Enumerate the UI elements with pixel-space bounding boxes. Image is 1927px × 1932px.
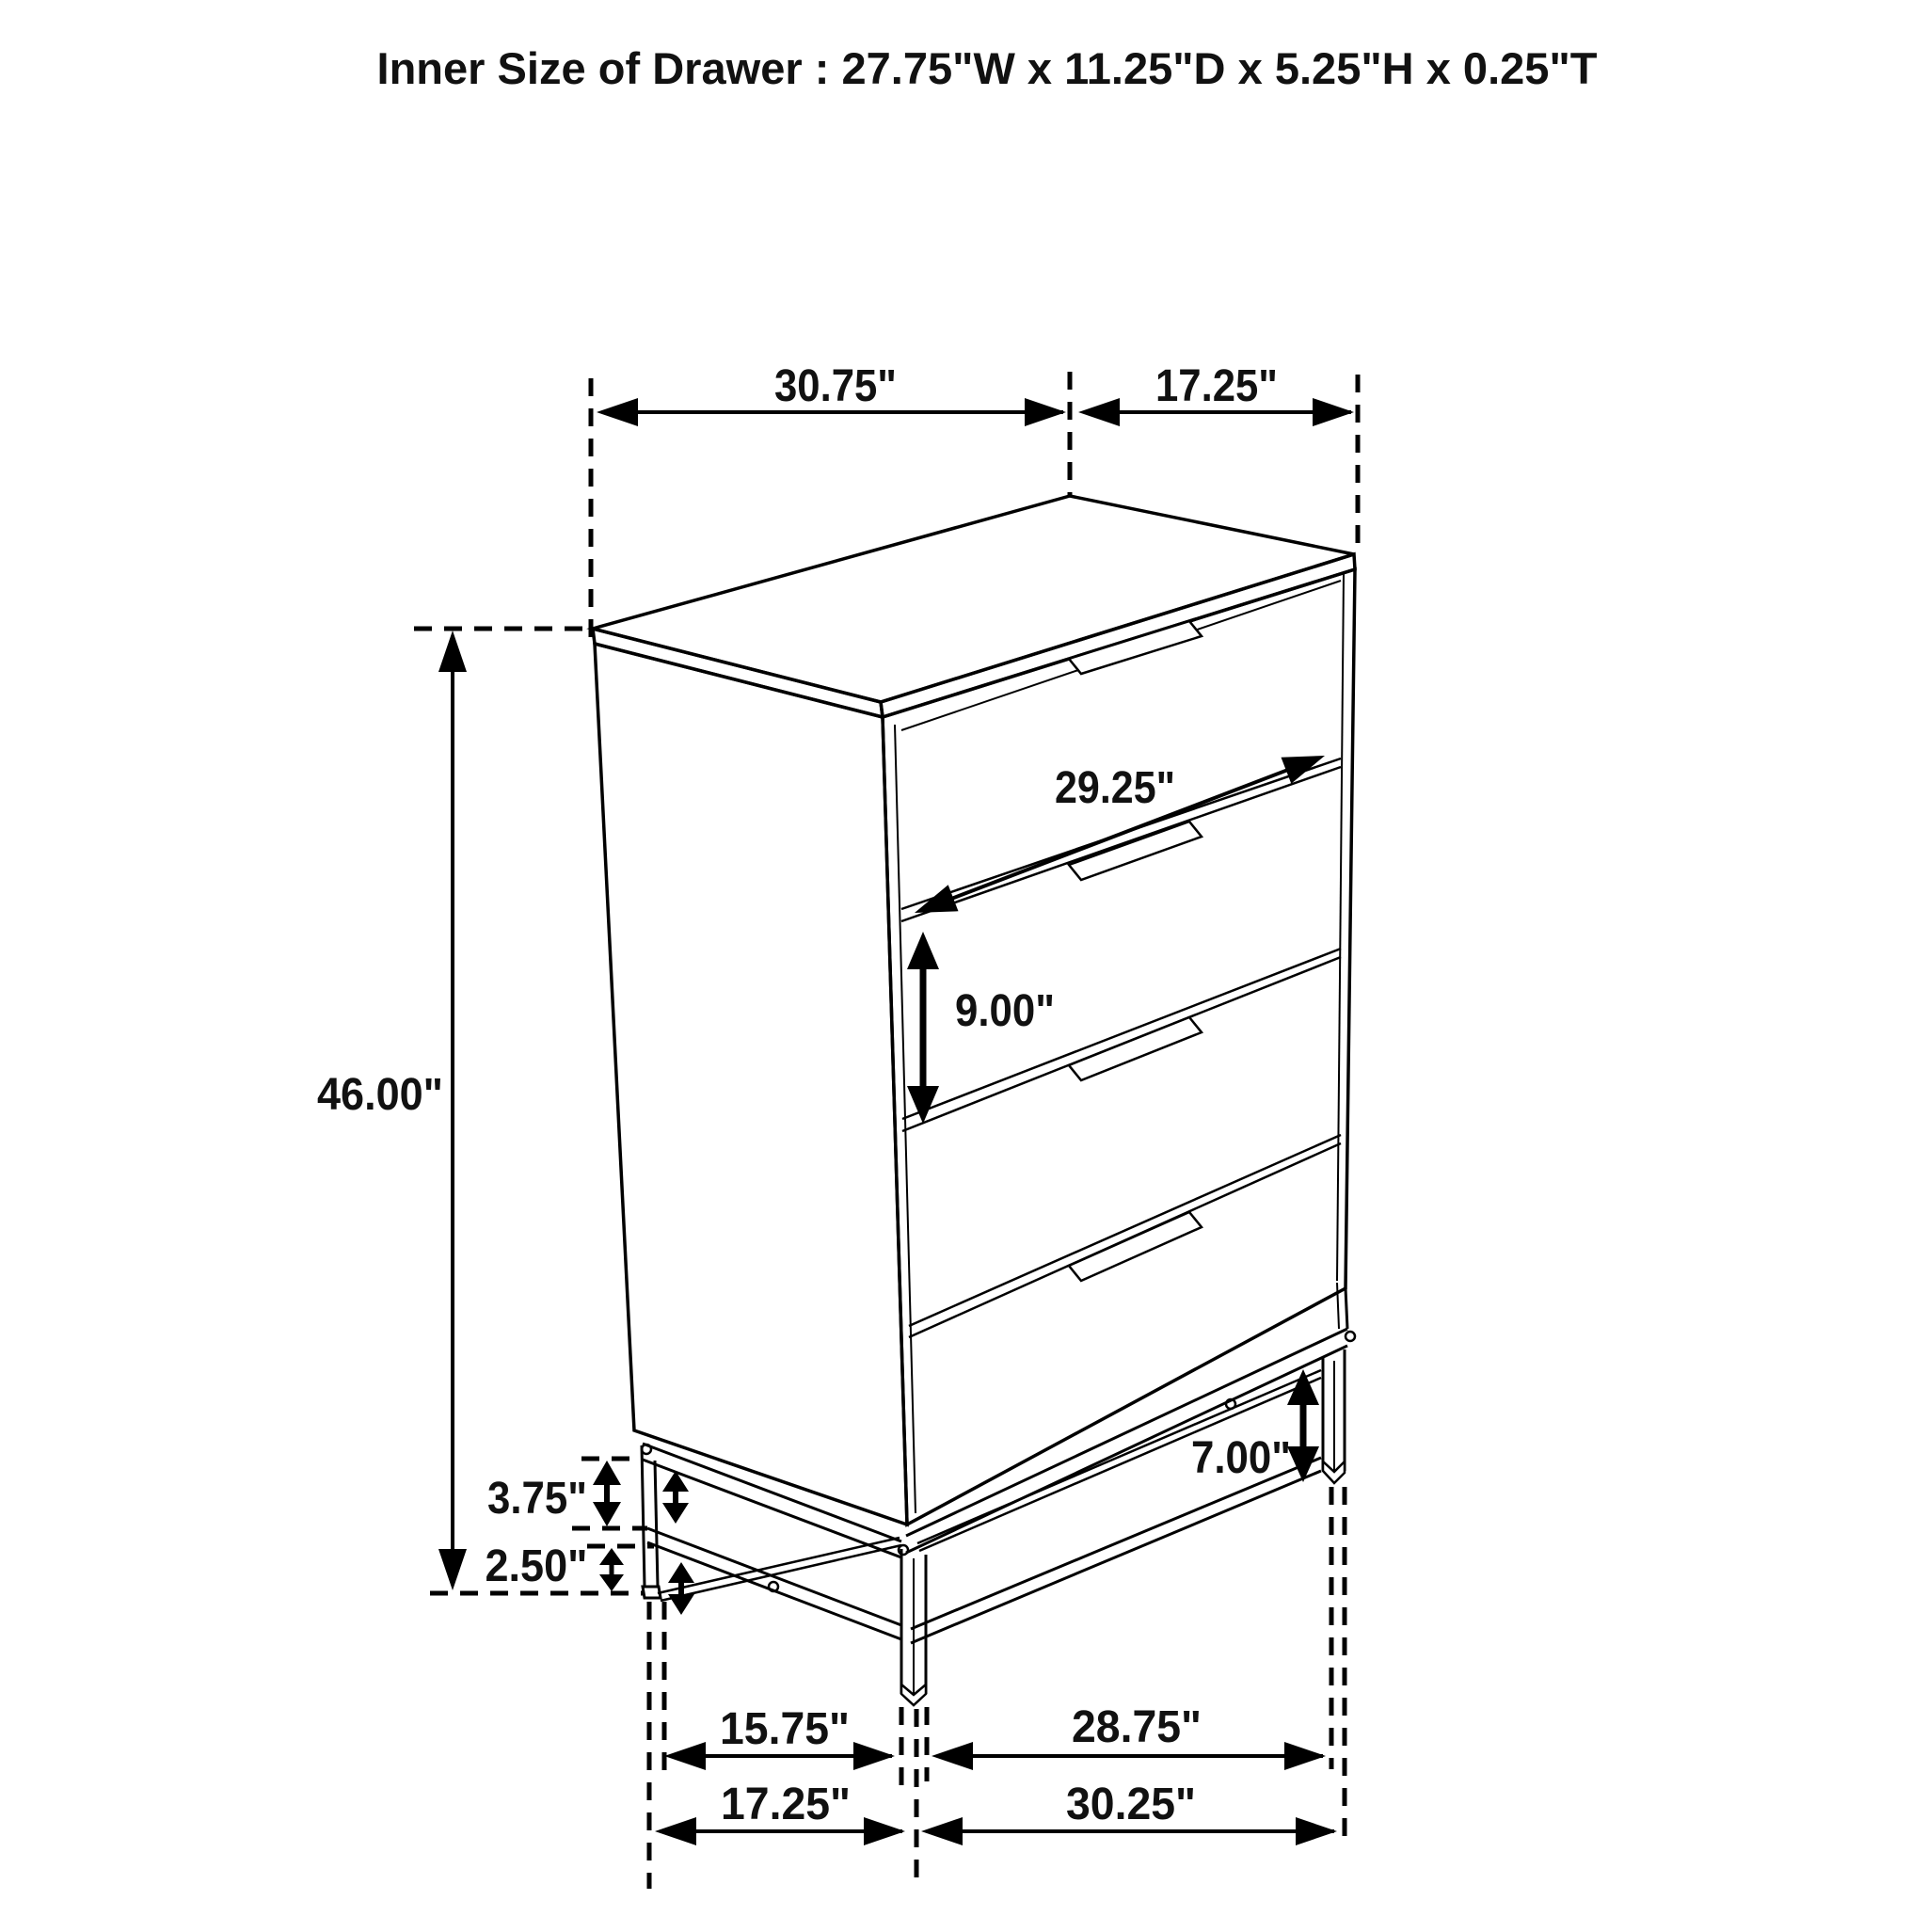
svg-text:30.25": 30.25" [1066,1780,1196,1829]
svg-text:3.75": 3.75" [487,1474,587,1524]
svg-text:17.25": 17.25" [1155,361,1278,411]
svg-text:2.50": 2.50" [486,1541,588,1591]
svg-text:Inner Size of Drawer : 27.75"W: Inner Size of Drawer : 27.75"W x 11.25"D… [377,43,1598,93]
svg-text:30.75": 30.75" [774,361,897,411]
svg-text:46.00": 46.00" [317,1070,443,1120]
svg-text:7.00": 7.00" [1191,1433,1291,1483]
svg-text:15.75": 15.75" [720,1704,850,1754]
svg-text:9.00": 9.00" [955,986,1055,1036]
svg-text:29.25": 29.25" [1055,763,1175,813]
svg-text:17.25": 17.25" [721,1780,851,1829]
svg-text:28.75": 28.75" [1072,1702,1202,1752]
